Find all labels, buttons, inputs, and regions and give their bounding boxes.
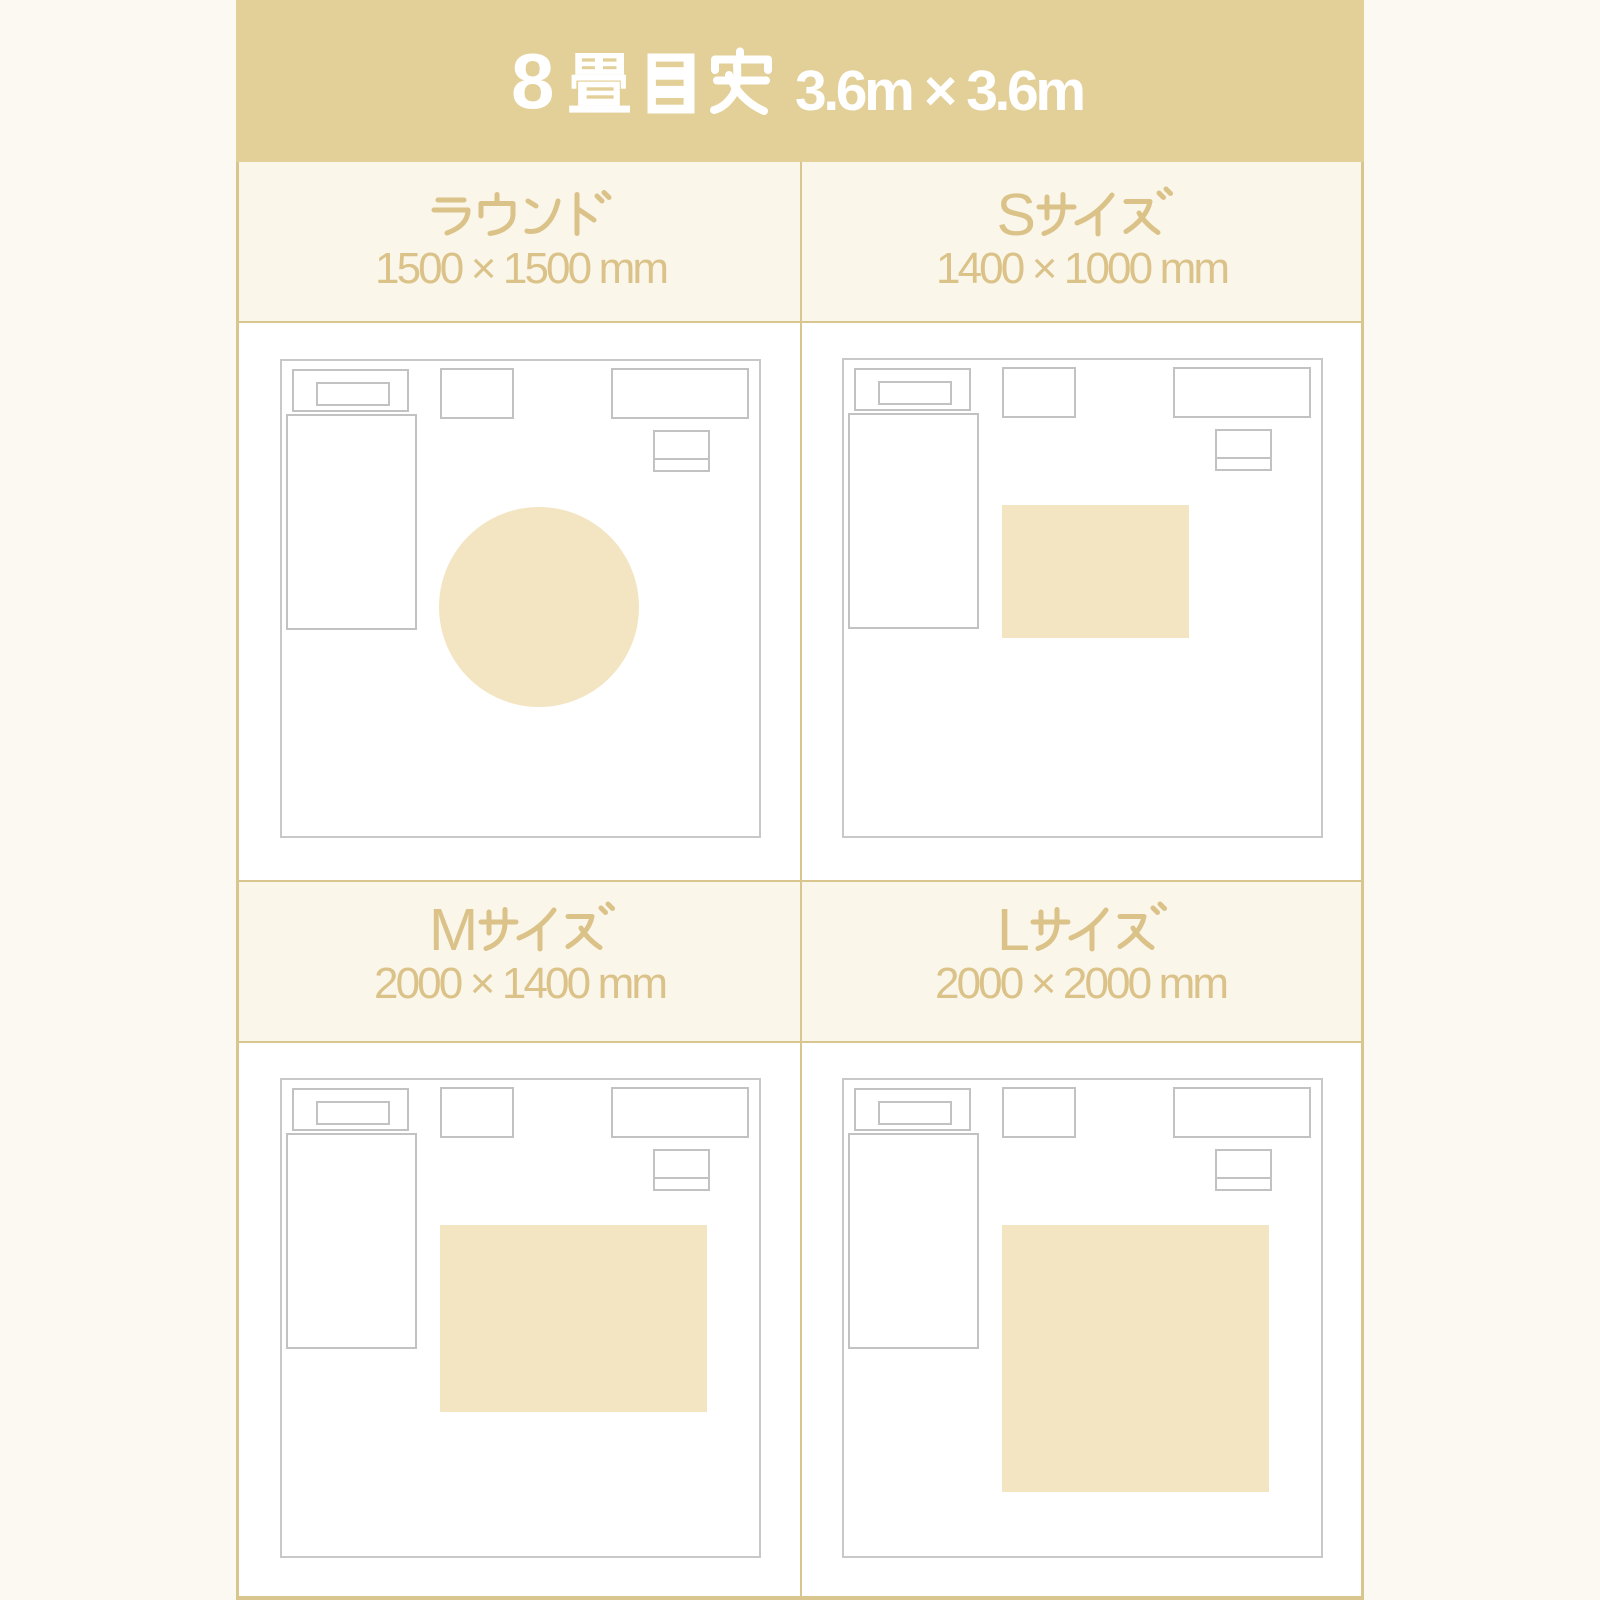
svg-text:3.6m × 3.6m: 3.6m × 3.6m (795, 59, 1086, 123)
svg-text:2000 × 2000 mm: 2000 × 2000 mm (935, 959, 1229, 1008)
svg-text:1500 × 1500 mm: 1500 × 1500 mm (375, 244, 669, 293)
svg-text:L: L (997, 897, 1030, 963)
svg-text:2000 × 1400 mm: 2000 × 1400 mm (374, 959, 668, 1008)
svg-text:8: 8 (511, 37, 554, 125)
svg-text:1400 × 1000 mm: 1400 × 1000 mm (936, 244, 1230, 293)
svg-text:M: M (429, 897, 478, 963)
svg-text:S: S (997, 182, 1036, 248)
